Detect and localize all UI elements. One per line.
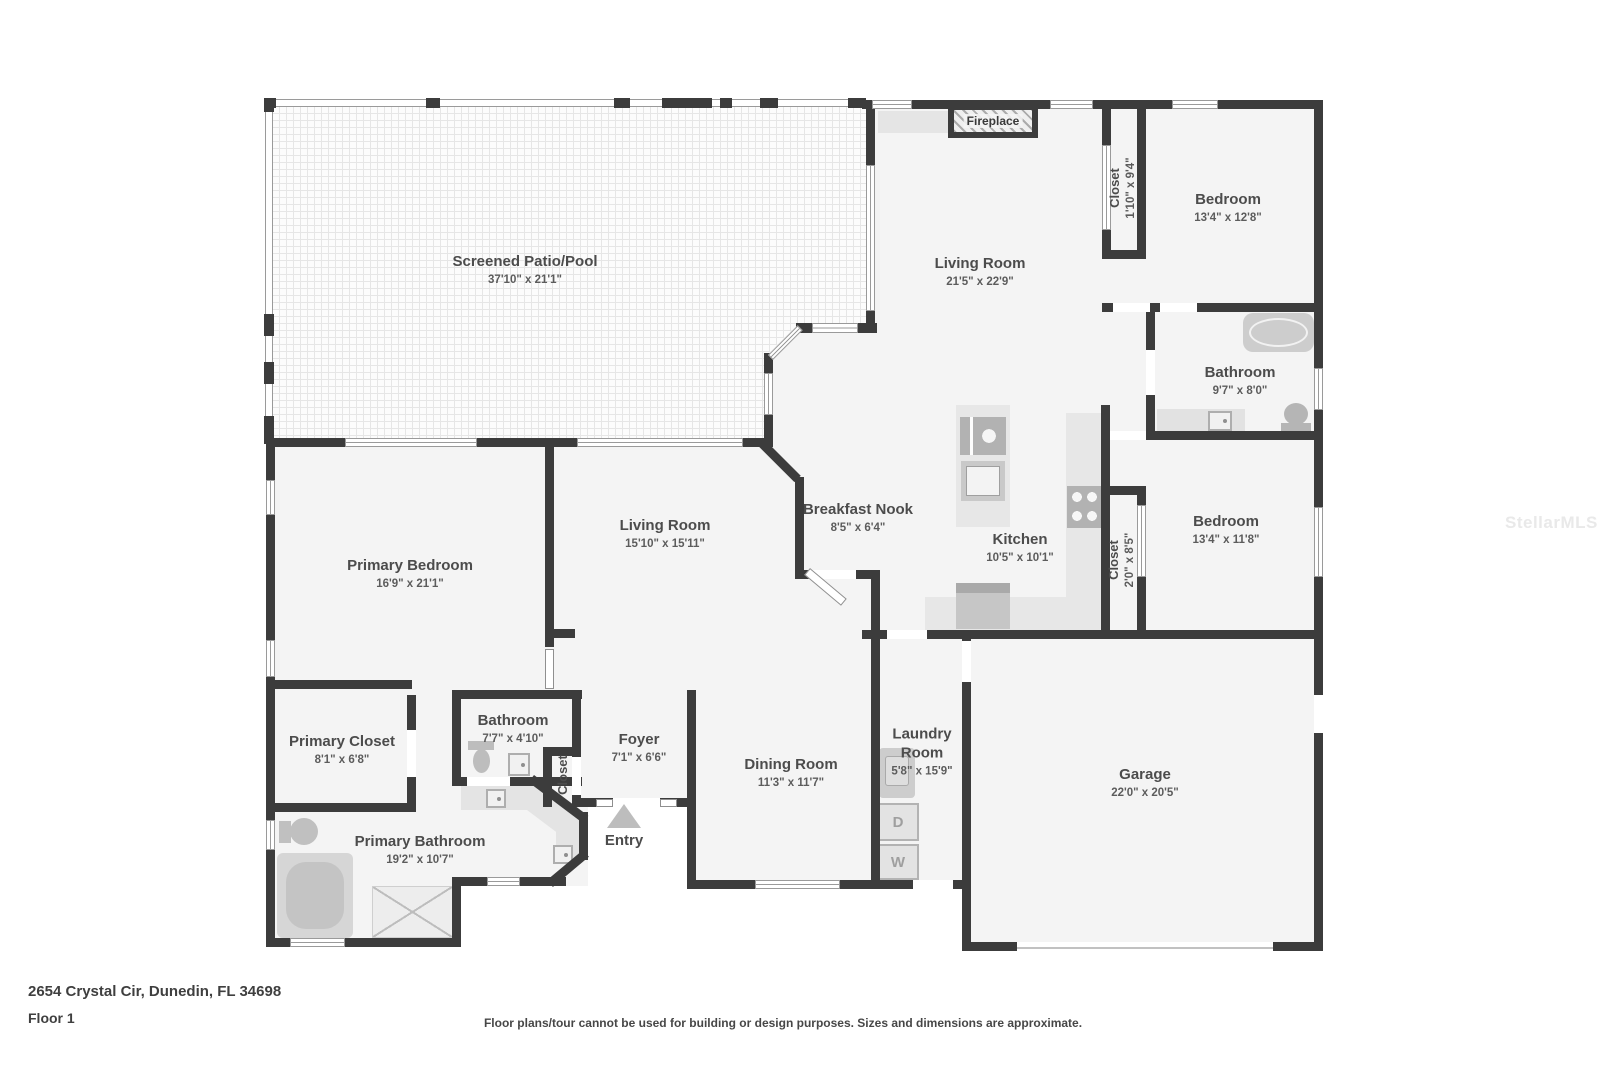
dishwasher-door <box>966 466 1000 496</box>
washer-label: W <box>891 854 905 871</box>
door-opening <box>1314 695 1323 733</box>
door-opening <box>1160 303 1197 312</box>
patio-post <box>662 98 712 108</box>
sink-icon <box>508 753 530 776</box>
window <box>266 640 275 677</box>
stove-icon <box>1067 486 1101 528</box>
wall <box>1102 250 1146 259</box>
door-opening <box>467 777 510 786</box>
room-label-breakfast-nook: Breakfast Nook 8'5" x 6'4" <box>803 501 913 535</box>
watermark: StellarMLS <box>1505 513 1598 533</box>
window <box>1172 100 1218 109</box>
room-label-foyer: Foyer 7'1" x 6'6" <box>612 731 667 765</box>
closet-door <box>1137 505 1146 577</box>
address-text: 2654 Crystal Cir, Dunedin, FL 34698 <box>28 983 281 1000</box>
door-opening <box>1146 350 1155 395</box>
entry-arrow-icon <box>607 804 641 828</box>
window <box>487 877 520 886</box>
window <box>1314 368 1323 410</box>
room-label-closet-top: Closet 1'10" x 9'4" <box>1107 157 1139 218</box>
range-icon <box>956 583 1010 629</box>
room-label-bathroom-right: Bathroom 9'7" x 8'0" <box>1205 364 1276 398</box>
window <box>290 938 345 947</box>
fireplace-icon: Fireplace <box>948 104 1038 138</box>
entry-door-panel <box>660 799 677 807</box>
room-label-primary-closet: Primary Closet 8'1" x 6'8" <box>289 733 395 767</box>
toilet-icon <box>1284 403 1308 425</box>
window <box>1314 507 1323 577</box>
disclaimer-text: Floor plans/tour cannot be used for buil… <box>484 1016 1082 1030</box>
fireplace-label: Fireplace <box>964 114 1023 128</box>
room-label-bathroom-hall: Bathroom 7'7" x 4'10" <box>478 712 549 746</box>
washer-icon: W <box>877 844 919 880</box>
room-label-hall-closet: Closet <box>555 755 571 795</box>
window <box>764 373 773 415</box>
entry-label: Entry <box>605 832 643 849</box>
wall <box>545 629 575 638</box>
room-label-laundry: Laundry Room 5'8" x 15'9" <box>886 726 958 779</box>
room-label-primary-bathroom: Primary Bathroom 19'2" x 10'7" <box>355 833 486 867</box>
patio-post <box>720 98 732 108</box>
room-label-bedroom-mid: Bedroom 13'4" x 11'8" <box>1193 513 1260 547</box>
kitchen-sink-icon <box>960 417 1006 455</box>
window <box>812 323 858 333</box>
room-label-primary-bedroom: Primary Bedroom 16'9" x 21'1" <box>347 557 473 591</box>
garage-door-line <box>1017 947 1273 949</box>
room-label-closet-mid: Closet 2'0" x 8'5" <box>1106 533 1138 588</box>
dryer-label: D <box>893 814 904 831</box>
patio-screen-wall-left <box>265 99 273 443</box>
wall <box>266 680 412 689</box>
door-opening <box>572 757 581 795</box>
door-opening <box>887 630 927 639</box>
door-opening <box>962 641 971 682</box>
door-opening <box>913 880 953 889</box>
floor-plan: D W <box>0 0 1600 1066</box>
patio-post <box>264 314 274 336</box>
room-label-patio: Screened Patio/Pool 37'10" x 21'1" <box>452 253 597 287</box>
room-label-kitchen: Kitchen 10'5" x 10'1" <box>986 531 1054 565</box>
room-label-living-center: Living Room 15'10" x 15'11" <box>620 517 711 551</box>
bathtub-basin <box>1249 318 1308 347</box>
shower-icon <box>372 886 453 938</box>
sliding-door <box>345 438 477 447</box>
sliding-door <box>577 438 743 447</box>
window <box>1050 100 1093 109</box>
sink-icon <box>486 789 506 808</box>
patio-post <box>264 362 274 384</box>
wall <box>545 443 554 647</box>
wall <box>266 803 416 812</box>
patio-post <box>760 98 778 108</box>
room-label-living-top: Living Room 21'5" x 22'9" <box>935 255 1026 289</box>
door-opening <box>407 730 416 777</box>
wall <box>1101 405 1110 639</box>
room-label-garage: Garage 22'0" x 20'5" <box>1111 766 1179 800</box>
wall <box>452 690 461 786</box>
room-label-bedroom-top: Bedroom 13'4" x 12'8" <box>1194 191 1262 225</box>
patio-post <box>614 98 630 108</box>
sliding-door <box>866 165 875 311</box>
kitchen-counter-bottom <box>925 597 1101 630</box>
window <box>872 100 912 109</box>
window <box>266 820 275 850</box>
window <box>266 480 275 515</box>
dryer-icon: D <box>877 803 919 841</box>
patio-post <box>264 98 274 112</box>
window <box>755 880 840 889</box>
bathroom-sink-icon <box>1208 411 1232 431</box>
door-opening <box>1113 303 1150 312</box>
floor-label: Floor 1 <box>28 1010 75 1026</box>
hearth <box>878 111 948 133</box>
door-opening <box>1110 431 1146 440</box>
patio-post <box>426 98 440 108</box>
toilet-bowl <box>473 749 490 773</box>
soaking-tub-basin <box>286 862 344 929</box>
room-label-dining: Dining Room 11'3" x 11'7" <box>744 756 837 790</box>
wall <box>862 630 1323 639</box>
wall <box>871 570 880 889</box>
door-leaf <box>545 649 554 689</box>
wall <box>452 690 582 699</box>
toilet-bowl <box>290 818 318 845</box>
wall <box>687 690 696 889</box>
